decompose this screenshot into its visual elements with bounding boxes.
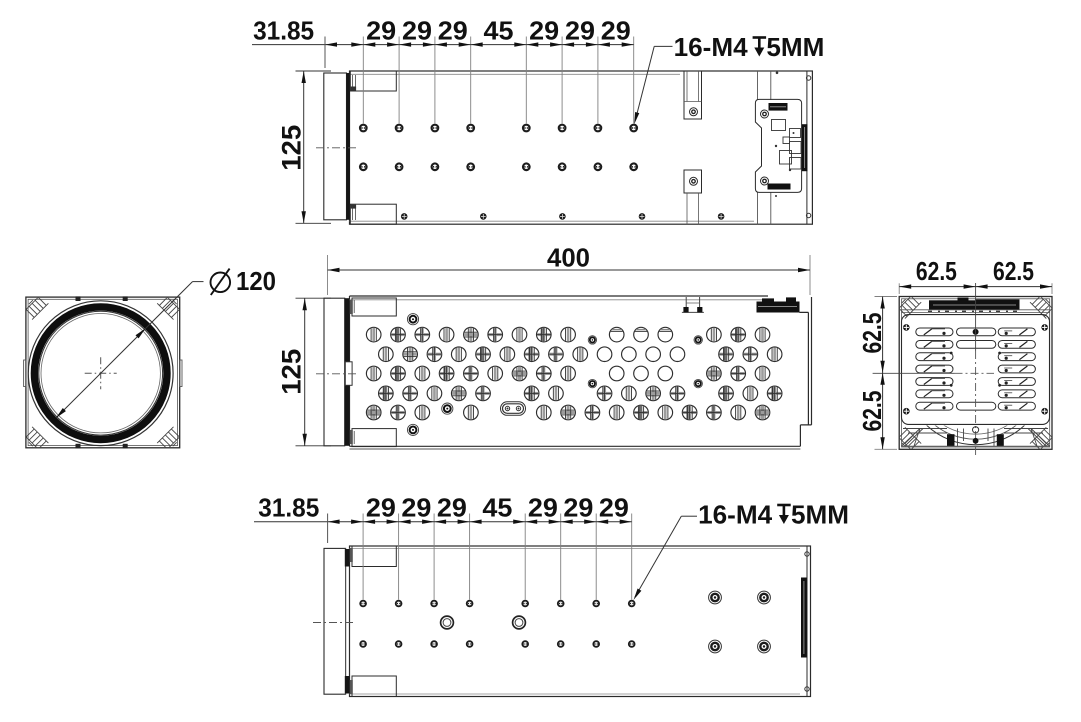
- svg-text:29: 29: [437, 493, 467, 523]
- svg-text:29: 29: [599, 493, 629, 523]
- svg-text:29: 29: [528, 493, 558, 523]
- svg-text:400: 400: [547, 243, 590, 273]
- svg-text:29: 29: [402, 16, 432, 46]
- svg-text:16-M4: 16-M4: [698, 500, 773, 530]
- svg-text:120: 120: [236, 266, 276, 296]
- svg-text:29: 29: [366, 493, 396, 523]
- svg-text:29: 29: [563, 493, 593, 523]
- svg-text:29: 29: [601, 16, 631, 46]
- svg-text:62.5: 62.5: [857, 313, 887, 354]
- svg-text:29: 29: [565, 16, 595, 46]
- svg-text:45: 45: [482, 493, 512, 523]
- svg-text:29: 29: [366, 16, 396, 46]
- svg-text:31.85: 31.85: [258, 493, 319, 523]
- svg-text:62.5: 62.5: [993, 256, 1034, 286]
- svg-text:62.5: 62.5: [857, 391, 887, 432]
- svg-text:5MM: 5MM: [791, 500, 849, 530]
- svg-text:29: 29: [438, 16, 468, 46]
- svg-text:31.85: 31.85: [253, 16, 314, 46]
- svg-text:29: 29: [529, 16, 559, 46]
- svg-text:45: 45: [484, 16, 514, 46]
- svg-text:125: 125: [277, 125, 307, 171]
- svg-text:125: 125: [277, 349, 307, 395]
- svg-text:16-M4: 16-M4: [674, 32, 749, 62]
- svg-text:62.5: 62.5: [916, 256, 957, 286]
- svg-text:5MM: 5MM: [766, 32, 824, 62]
- svg-text:29: 29: [401, 493, 431, 523]
